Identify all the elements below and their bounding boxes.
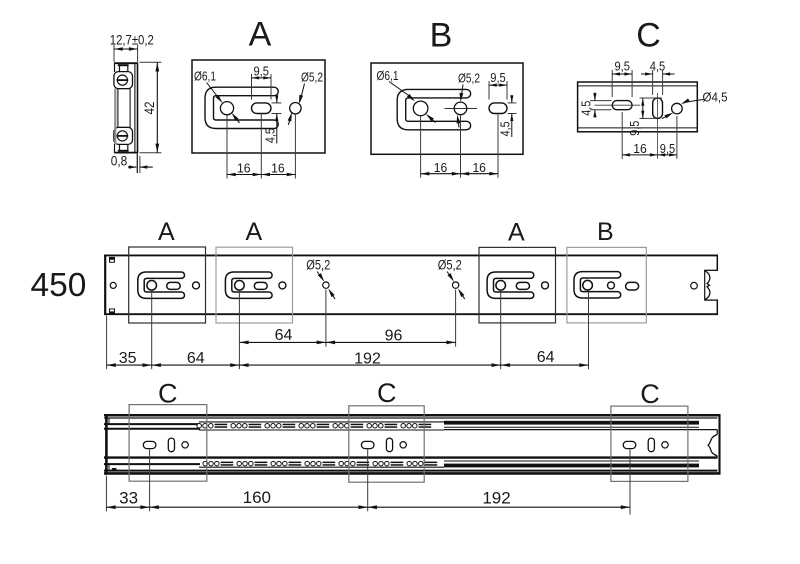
svg-text:4,5: 4,5 bbox=[579, 101, 594, 116]
svg-text:C: C bbox=[158, 379, 178, 409]
svg-text:A: A bbox=[249, 16, 272, 54]
svg-text:16: 16 bbox=[237, 160, 251, 175]
svg-text:64: 64 bbox=[187, 350, 205, 367]
svg-text:16: 16 bbox=[633, 141, 647, 156]
svg-text:9,5: 9,5 bbox=[614, 59, 630, 74]
svg-text:B: B bbox=[597, 218, 614, 246]
svg-text:B: B bbox=[430, 17, 453, 55]
svg-text:0,8: 0,8 bbox=[111, 152, 128, 168]
svg-text:Ø5,2: Ø5,2 bbox=[438, 258, 462, 273]
svg-text:64: 64 bbox=[537, 349, 555, 366]
svg-text:9,5: 9,5 bbox=[253, 63, 269, 78]
svg-text:4,5: 4,5 bbox=[263, 128, 278, 143]
svg-text:Ø5,2: Ø5,2 bbox=[458, 70, 480, 85]
svg-text:192: 192 bbox=[354, 350, 381, 367]
svg-text:16: 16 bbox=[472, 160, 486, 175]
svg-text:42: 42 bbox=[142, 102, 157, 115]
svg-text:C: C bbox=[377, 378, 397, 408]
svg-text:C: C bbox=[636, 17, 661, 55]
svg-text:Ø6,1: Ø6,1 bbox=[377, 68, 399, 83]
svg-text:16: 16 bbox=[434, 160, 448, 175]
svg-text:9,5: 9,5 bbox=[660, 141, 676, 156]
svg-text:192: 192 bbox=[482, 488, 510, 507]
svg-text:9,5: 9,5 bbox=[627, 121, 642, 136]
svg-text:64: 64 bbox=[275, 327, 293, 344]
svg-text:Ø4,5: Ø4,5 bbox=[703, 90, 728, 105]
svg-text:96: 96 bbox=[385, 328, 403, 345]
svg-text:Ø5,2: Ø5,2 bbox=[306, 258, 330, 273]
svg-text:A: A bbox=[508, 219, 525, 247]
svg-text:4,5: 4,5 bbox=[498, 121, 513, 136]
svg-text:C: C bbox=[640, 379, 660, 409]
svg-text:9,5: 9,5 bbox=[490, 70, 506, 85]
svg-text:450: 450 bbox=[31, 267, 87, 304]
svg-text:Ø6,1: Ø6,1 bbox=[194, 69, 216, 84]
svg-text:A: A bbox=[246, 218, 263, 246]
svg-text:160: 160 bbox=[243, 488, 271, 507]
svg-text:A: A bbox=[158, 218, 175, 246]
svg-text:16: 16 bbox=[271, 160, 285, 175]
svg-text:33: 33 bbox=[119, 489, 138, 508]
svg-text:12,7±0,2: 12,7±0,2 bbox=[110, 32, 154, 48]
svg-text:35: 35 bbox=[119, 350, 137, 367]
svg-text:Ø5,2: Ø5,2 bbox=[301, 69, 323, 84]
